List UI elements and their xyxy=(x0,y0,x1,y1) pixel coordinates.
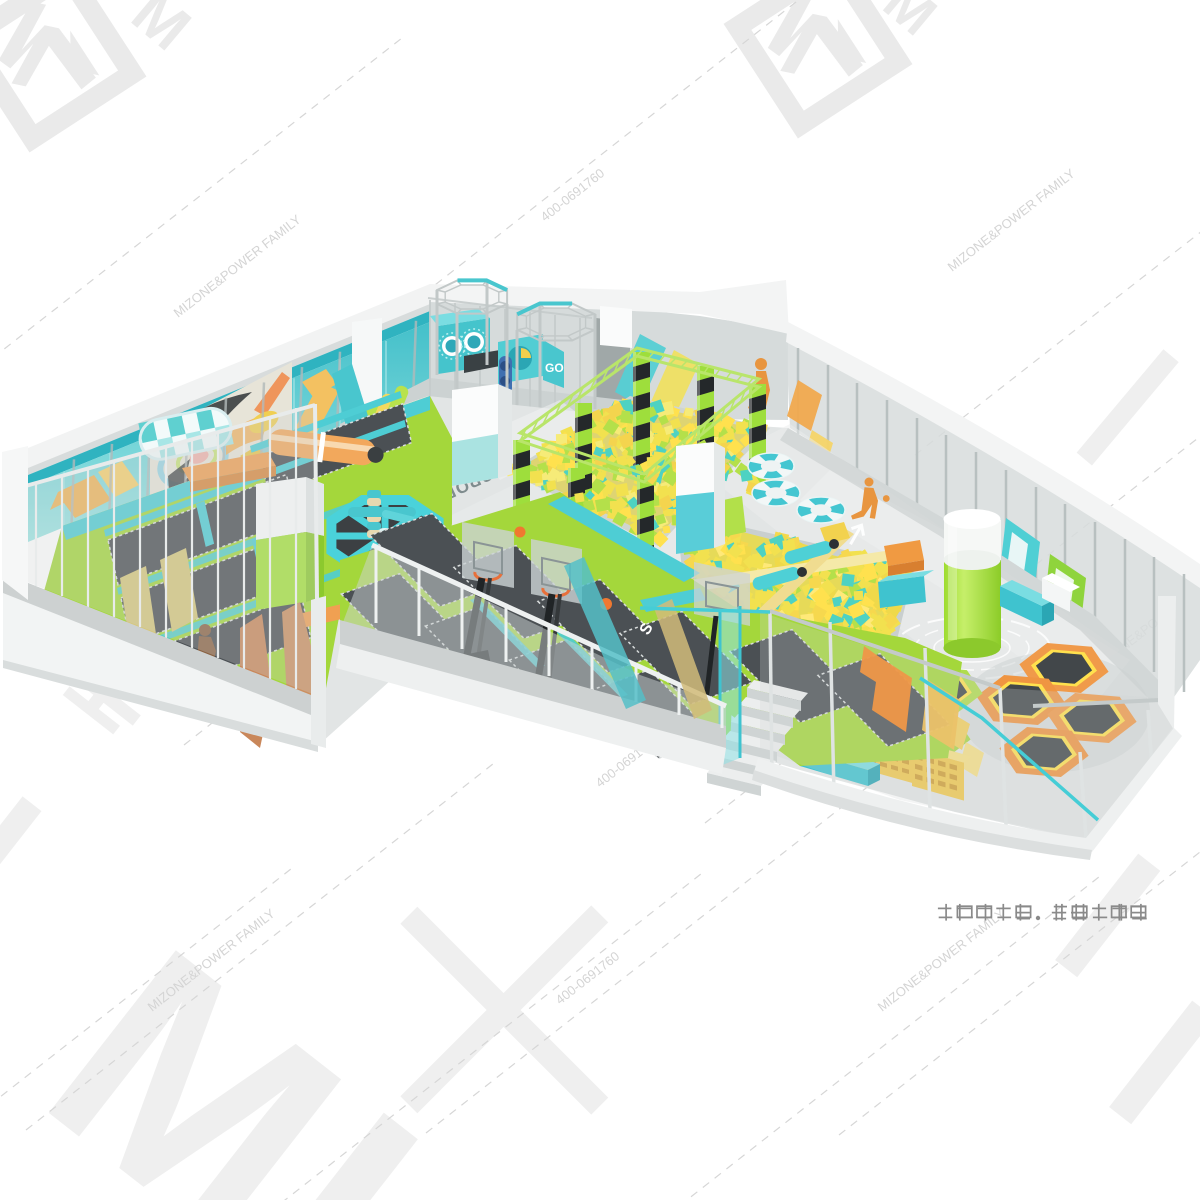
svg-text:GO: GO xyxy=(545,361,564,375)
